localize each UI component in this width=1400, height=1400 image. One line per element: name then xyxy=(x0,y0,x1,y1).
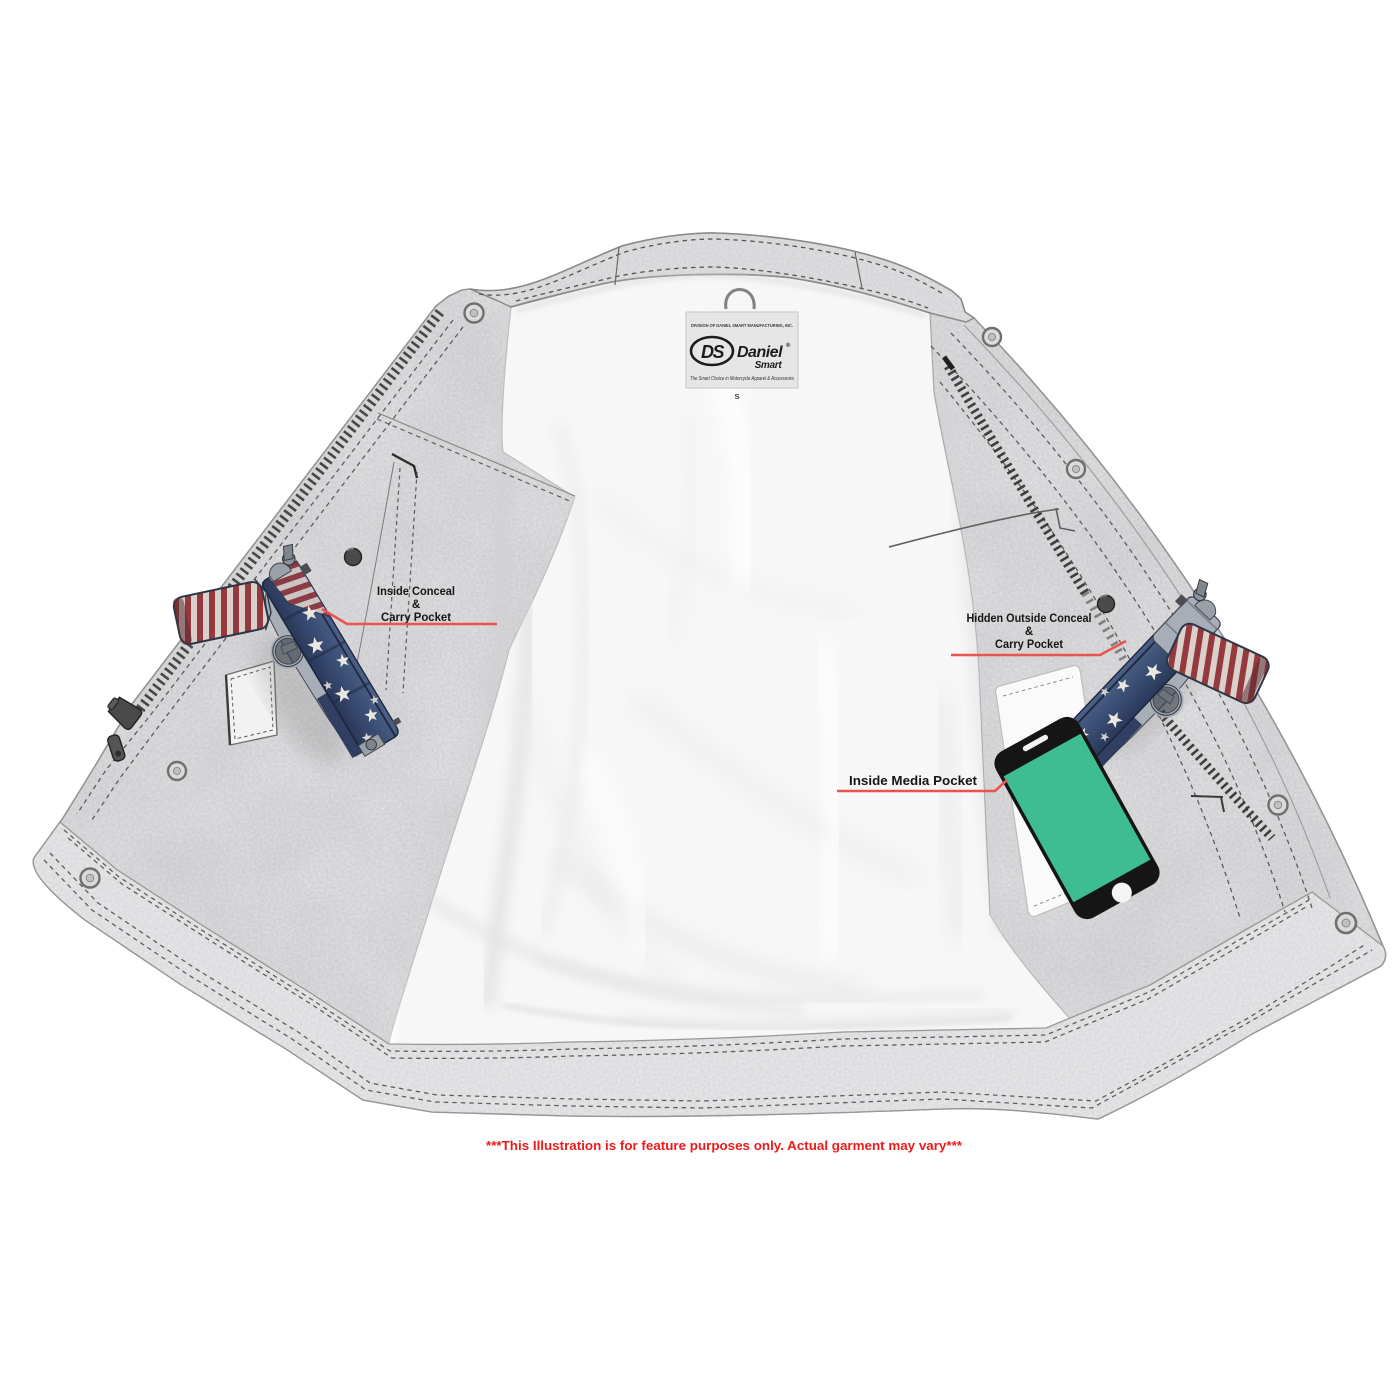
svg-text:&: & xyxy=(412,599,420,611)
svg-text:DIVISION OF DANIEL SMART MANUF: DIVISION OF DANIEL SMART MANUFACTURING, … xyxy=(691,323,793,328)
svg-text:Smart: Smart xyxy=(755,360,783,371)
svg-text:Inside Conceal: Inside Conceal xyxy=(377,586,455,598)
svg-text:***This Illustration is for fe: ***This Illustration is for feature purp… xyxy=(486,1138,963,1153)
svg-text:S: S xyxy=(734,392,739,401)
svg-text:&: & xyxy=(1025,626,1033,638)
svg-text:Carry Pocket: Carry Pocket xyxy=(995,639,1063,651)
svg-text:DS: DS xyxy=(701,342,724,362)
svg-text:Carry Pocket: Carry Pocket xyxy=(381,612,451,624)
svg-text:®: ® xyxy=(786,342,791,349)
svg-text:Hidden Outside Conceal: Hidden Outside Conceal xyxy=(967,613,1092,625)
svg-text:The Smart Choice in Motorcycle: The Smart Choice in Motorcycle Apparel &… xyxy=(690,376,794,382)
svg-text:Inside Media Pocket: Inside Media Pocket xyxy=(849,773,978,788)
svg-text:Daniel: Daniel xyxy=(737,344,783,361)
